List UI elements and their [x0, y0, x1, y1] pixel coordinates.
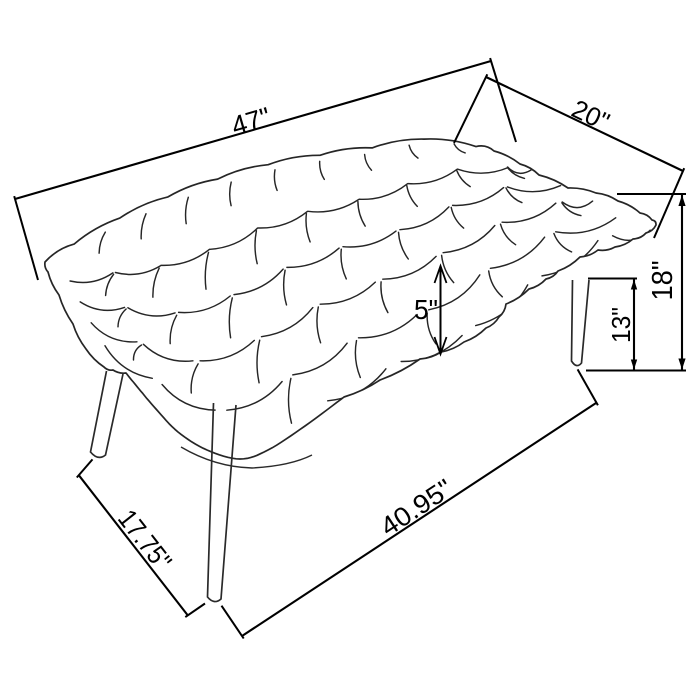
svg-text:18": 18": [647, 261, 679, 301]
svg-text:5": 5": [414, 294, 438, 325]
svg-text:13": 13": [608, 307, 636, 343]
